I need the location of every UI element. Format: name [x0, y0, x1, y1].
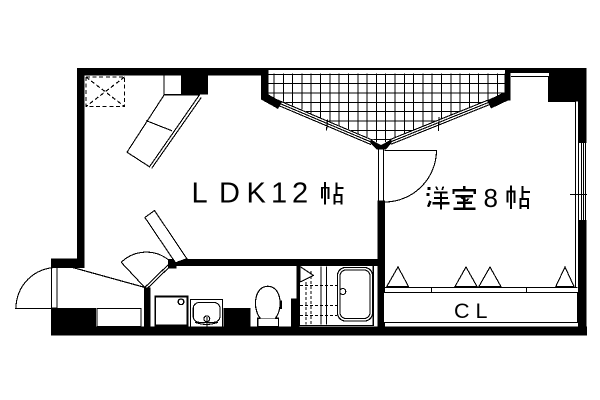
- svg-text:L: L: [476, 299, 488, 323]
- svg-text:C: C: [454, 299, 470, 323]
- svg-text:8: 8: [484, 183, 498, 213]
- svg-text:D: D: [219, 178, 240, 210]
- svg-text:2: 2: [292, 178, 308, 210]
- svg-text:1: 1: [271, 178, 287, 210]
- svg-text:K: K: [247, 178, 267, 210]
- svg-text:L: L: [192, 178, 208, 210]
